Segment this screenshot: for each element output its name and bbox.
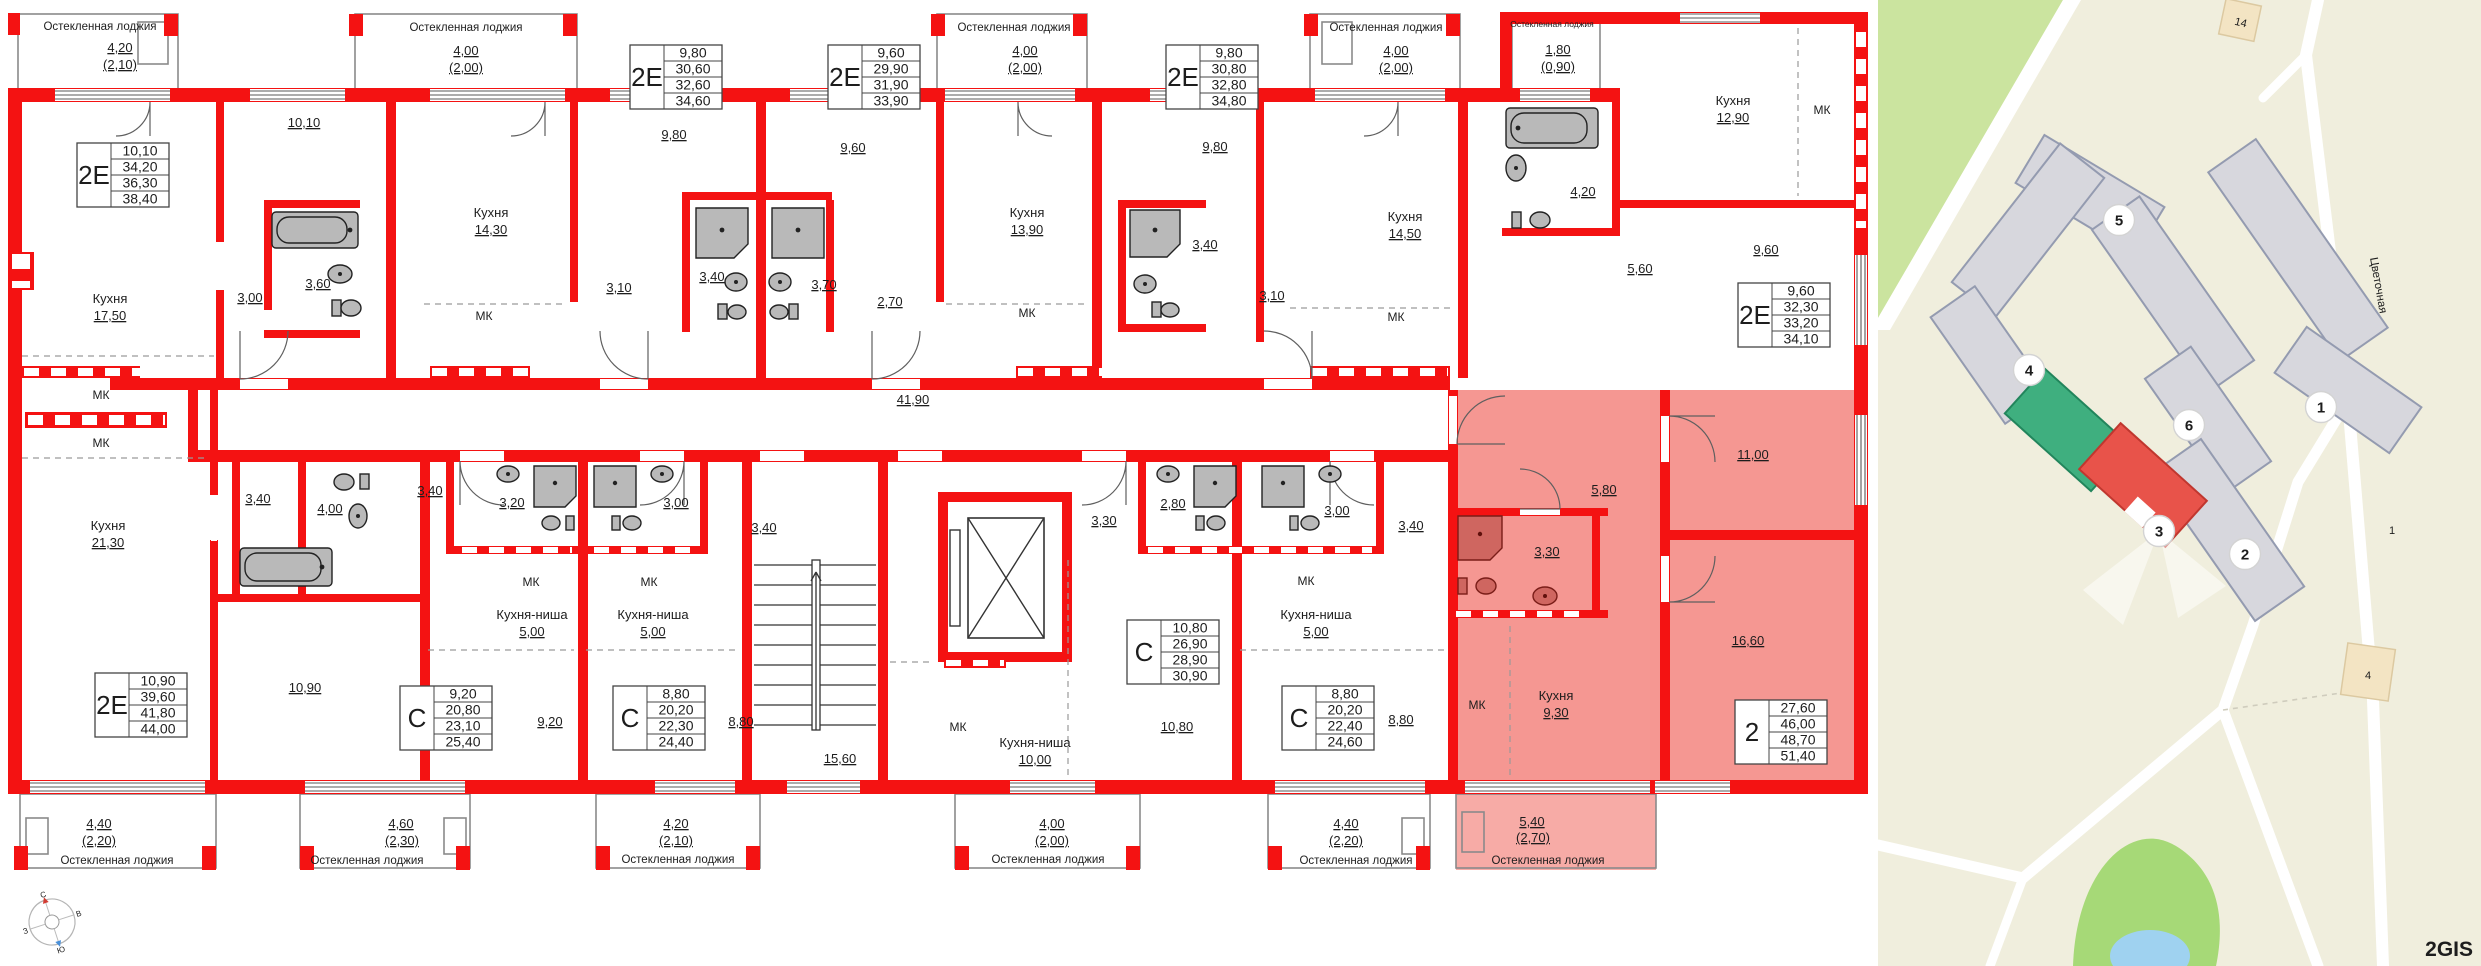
apartment-area-value: 24,60 [1327, 734, 1362, 750]
apartment-area-value: 34,60 [675, 93, 710, 109]
room-label: 10,10 [288, 115, 321, 130]
bathtub-icon [272, 212, 358, 248]
apartment-type-label: 2Е [631, 62, 663, 92]
apartment-area-value: 9,20 [449, 686, 476, 702]
sink-icon [1533, 587, 1557, 605]
room-label: (2,20) [1329, 833, 1363, 848]
toilet-icon [1196, 516, 1225, 530]
room-label: 3,40 [245, 491, 270, 506]
room-label: Кухня [91, 518, 126, 533]
room-label: 9,60 [1753, 242, 1778, 257]
floor-plan[interactable]: СВЮЗ Остекленная лоджия4,20(2,10)Остекле… [0, 0, 1878, 966]
apartment-area-value: 34,80 [1211, 93, 1246, 109]
apartment-type-label: С [1290, 703, 1309, 733]
apartment-area-value: 39,60 [140, 689, 175, 705]
staircase [754, 560, 876, 730]
room-label: 4,00 [317, 501, 342, 516]
room-label: 10,90 [289, 680, 322, 695]
apartment-area-value: 22,40 [1327, 718, 1362, 734]
apartment-table[interactable]: С10,8026,9028,9030,90 [1127, 620, 1219, 685]
room-label: 4,20 [663, 816, 688, 831]
room-label: Кухня [474, 205, 509, 220]
toilet-icon [334, 474, 369, 490]
apartment-table[interactable]: 2Е9,6032,3033,2034,10 [1738, 283, 1830, 348]
room-label: 4,60 [388, 816, 413, 831]
apartment-table[interactable]: 2Е9,6029,9031,9033,90 [828, 45, 920, 110]
marker-number: 1 [2317, 400, 2325, 417]
room-label: 4,40 [1333, 816, 1358, 831]
apartment-area-value: 46,00 [1780, 716, 1815, 732]
room-label: Остекленная лоджия [1329, 22, 1442, 34]
apartment-area-value: 48,70 [1780, 732, 1815, 748]
room-label: 2,80 [1160, 496, 1185, 511]
toilet-icon [542, 516, 574, 530]
shower-icon [1194, 466, 1236, 507]
room-label: (0,90) [1541, 59, 1575, 74]
room-label: 3,10 [606, 280, 631, 295]
toilet-icon [1152, 302, 1179, 317]
apartment-table[interactable]: С8,8020,2022,3024,40 [613, 686, 705, 751]
toilet-icon [1290, 516, 1319, 530]
room-label: Остекленная лоджия [43, 21, 156, 33]
marker-number: 6 [2185, 418, 2193, 435]
room-label: 9,30 [1543, 705, 1568, 720]
room-label: Остекленная лоджия [310, 855, 423, 867]
apartment-type-label: 2 [1745, 717, 1759, 747]
room-label: 3,00 [1324, 503, 1349, 518]
apartment-type-label: С [1135, 637, 1154, 667]
apartment-area-value: 36,30 [122, 175, 157, 191]
room-label: МК [1298, 574, 1315, 588]
room-label: 3,40 [1192, 237, 1217, 252]
room-label: (2,00) [449, 60, 483, 75]
building-number-label: 4 [2365, 670, 2371, 682]
room-label: 5,40 [1519, 814, 1544, 829]
room-label: (2,00) [1379, 60, 1413, 75]
room-label: 21,30 [92, 535, 125, 550]
room-label: Кухня [1010, 205, 1045, 220]
apartment-area-value: 32,80 [1211, 77, 1246, 93]
marker-number: 4 [2025, 363, 2034, 380]
room-label: Кухня-ниша [1280, 607, 1352, 622]
room-label: Кухня-ниша [496, 607, 568, 622]
apartment-area-value: 29,90 [873, 61, 908, 77]
room-label: 5,00 [1303, 624, 1328, 639]
room-label: 4,00 [453, 43, 478, 58]
apartment-area-value: 9,80 [1215, 45, 1242, 61]
room-label: 4,40 [86, 816, 111, 831]
toilet-icon [612, 516, 641, 530]
apartment-area-value: 30,60 [675, 61, 710, 77]
bathtub-icon [240, 548, 332, 586]
apartment-type-label: С [621, 703, 640, 733]
building-number-label: 1 [2389, 525, 2395, 537]
apartment-table[interactable]: 227,6046,0048,7051,40 [1735, 700, 1827, 765]
room-label: 15,60 [824, 751, 857, 766]
room-label: 9,80 [1202, 139, 1227, 154]
room-label: 5,80 [1591, 482, 1616, 497]
room-label: 5,00 [519, 624, 544, 639]
apartment-area-value: 28,90 [1172, 652, 1207, 668]
room-label: 13,90 [1011, 222, 1044, 237]
room-label: 4,00 [1383, 43, 1408, 58]
apartment-area-value: 51,40 [1780, 748, 1815, 764]
apartment-type-label: 2Е [96, 690, 128, 720]
room-label: 3,00 [237, 290, 262, 305]
apartment-area-value: 10,80 [1172, 620, 1207, 636]
room-label: 11,00 [1737, 447, 1769, 462]
building-marker-2[interactable]: 2 [2230, 539, 2261, 570]
room-label: 3,30 [1091, 513, 1116, 528]
room-label: 5,60 [1627, 261, 1652, 276]
room-label: 4,20 [107, 40, 132, 55]
room-label: МК [93, 436, 110, 450]
room-label: (2,10) [103, 57, 137, 72]
room-label: 3,40 [417, 483, 442, 498]
room-label: 10,00 [1019, 752, 1052, 767]
room-label: Кухня [1716, 93, 1751, 108]
apartment-type-label: С [408, 703, 427, 733]
apartment-area-value: 32,60 [675, 77, 710, 93]
marker-number: 5 [2115, 213, 2123, 230]
room-label: 14,30 [475, 222, 508, 237]
apartment-area-value: 41,80 [140, 705, 175, 721]
apartment-area-value: 30,90 [1172, 668, 1207, 684]
room-label: МК [1814, 103, 1831, 117]
apartment-area-value: 10,90 [140, 673, 175, 689]
apartment-area-value: 10,10 [122, 143, 157, 159]
room-label: МК [523, 575, 540, 589]
room-label: МК [1019, 306, 1036, 320]
apartment-area-value: 38,40 [122, 191, 157, 207]
room-label: МК [641, 575, 658, 589]
apartment-area-value: 22,30 [658, 718, 693, 734]
marker-number: 3 [2155, 524, 2163, 541]
apartment-area-value: 20,20 [1327, 702, 1362, 718]
room-label: Остекленная лоджия [957, 22, 1070, 34]
room-label: Остекленная лоджия [1299, 855, 1412, 867]
room-label: 9,20 [537, 714, 562, 729]
room-label: МК [950, 720, 967, 734]
room-label: 3,40 [751, 520, 776, 535]
apartment-type-label: 2Е [1167, 62, 1199, 92]
room-label: 8,80 [728, 714, 753, 729]
apartment-area-value: 44,00 [140, 721, 175, 737]
shower-icon [1262, 466, 1304, 507]
apartment-area-value: 20,80 [445, 702, 480, 718]
room-label: 3,40 [699, 269, 724, 284]
location-map[interactable]: Цветочная 2GIS 1441 546123 [1878, 0, 2481, 966]
shower-icon [594, 466, 636, 507]
room-label: 3,60 [305, 276, 330, 291]
sink-icon [1134, 275, 1156, 293]
room-label: 9,60 [840, 140, 865, 155]
sink-icon [1506, 155, 1526, 181]
sink-icon [725, 273, 747, 291]
building-marker-1[interactable]: 1 [2306, 392, 2337, 423]
room-label: Остекленная лоджия [409, 22, 522, 34]
apartment-area-value: 33,90 [873, 93, 908, 109]
room-label: Кухня [1388, 209, 1423, 224]
room-label: (2,10) [659, 833, 693, 848]
map-watermark: 2GIS [2425, 938, 2473, 961]
apartment-area-value: 23,10 [445, 718, 480, 734]
sink-icon [1157, 466, 1179, 482]
room-label: (2,30) [385, 833, 419, 848]
room-label: (2,70) [1516, 830, 1550, 845]
sink-icon [1319, 466, 1341, 482]
room-label: 12,90 [1717, 110, 1750, 125]
room-label: 3,40 [1398, 518, 1423, 533]
shower-icon [696, 208, 748, 258]
apartment-area-value: 24,40 [658, 734, 693, 750]
room-label: МК [476, 309, 493, 323]
apartment-table[interactable]: 2Е9,8030,8032,8034,80 [1166, 45, 1258, 110]
apartment-area-value: 34,10 [1783, 331, 1818, 347]
building-marker-3[interactable]: 3 [2144, 516, 2175, 547]
room-label: 3,10 [1259, 288, 1284, 303]
room-label: 3,70 [811, 277, 836, 292]
apartment-area-value: 8,80 [662, 686, 689, 702]
apartment-table[interactable]: 2Е10,1034,2036,3038,40 [77, 143, 169, 208]
apartment-area-value: 9,60 [877, 45, 904, 61]
room-label: 4,00 [1039, 816, 1064, 831]
building-marker-5[interactable]: 5 [2104, 205, 2135, 236]
shower-icon [772, 208, 824, 258]
room-label: 17,50 [94, 308, 127, 323]
room-label: 3,30 [1534, 544, 1559, 559]
room-label: МК [1469, 698, 1486, 712]
building-marker-4[interactable]: 4 [2014, 355, 2045, 386]
apartment-area-value: 32,30 [1783, 299, 1818, 315]
apartment-area-value: 20,20 [658, 702, 693, 718]
apartment-area-value: 30,80 [1211, 61, 1246, 77]
room-label: Кухня [93, 291, 128, 306]
sink-icon [497, 466, 519, 482]
room-label: 1,80 [1545, 42, 1570, 57]
room-label: 3,20 [499, 495, 524, 510]
room-label: (2,00) [1035, 833, 1069, 848]
apartment-area-value: 9,60 [1787, 283, 1814, 299]
room-label: 3,00 [663, 495, 688, 510]
marker-number: 2 [2241, 547, 2249, 564]
room-label: Остекленная лоджия [1491, 855, 1604, 867]
toilet-icon [718, 304, 746, 319]
room-label: 9,80 [661, 127, 686, 142]
toilet-icon [332, 300, 361, 316]
room-label: Кухня-ниша [999, 735, 1071, 750]
room-label: Остекленная лоджия [991, 854, 1104, 866]
room-label: 4,20 [1570, 184, 1595, 199]
room-label: 41,90 [897, 392, 930, 407]
room-label: (2,20) [82, 833, 116, 848]
toilet-icon [770, 304, 798, 319]
apartment-area-value: 8,80 [1331, 686, 1358, 702]
shower-icon [534, 466, 576, 507]
building-marker-6[interactable]: 6 [2174, 410, 2205, 441]
room-label: МК [1388, 310, 1405, 324]
sink-icon [651, 466, 673, 482]
room-label: 10,80 [1161, 719, 1194, 734]
sink-icon [769, 273, 791, 291]
apartment-area-value: 33,20 [1783, 315, 1818, 331]
apartment-area-value: 34,20 [122, 159, 157, 175]
room-label: 2,70 [877, 294, 902, 309]
floor-plan-panel: СВЮЗ Остекленная лоджия4,20(2,10)Остекле… [0, 0, 1878, 966]
apartment-area-value: 25,40 [445, 734, 480, 750]
room-label: Кухня-ниша [617, 607, 689, 622]
apartment-area-value: 26,90 [1172, 636, 1207, 652]
room-label: МК [93, 388, 110, 402]
shower-icon [1130, 210, 1180, 257]
room-label: (2,00) [1008, 60, 1042, 75]
room-label: 16,60 [1732, 633, 1765, 648]
room-label: Остекленная лоджия [60, 855, 173, 867]
room-label: Остекленная лоджия [621, 854, 734, 866]
apartment-table[interactable]: 2Е10,9039,6041,8044,00 [95, 673, 187, 738]
room-label: 14,50 [1389, 226, 1422, 241]
apartment-area-value: 31,90 [873, 77, 908, 93]
bathtub-icon [1506, 108, 1598, 148]
apartment-type-label: 2Е [829, 62, 861, 92]
sink-icon [328, 265, 352, 283]
room-label: 5,00 [640, 624, 665, 639]
room-label: Кухня [1539, 688, 1574, 703]
apartment-table[interactable]: С9,2020,8023,1025,40 [400, 686, 492, 751]
floorplan-viewer: СВЮЗ Остекленная лоджия4,20(2,10)Остекле… [0, 0, 2481, 966]
apartment-table[interactable]: С8,8020,2022,4024,60 [1282, 686, 1374, 751]
map-canvas[interactable]: Цветочная 2GIS 1441 546123 [1878, 0, 2481, 966]
apartment-area-value: 9,80 [679, 45, 706, 61]
apartment-type-label: 2Е [78, 160, 110, 190]
room-label: 8,80 [1388, 712, 1413, 727]
apartment-area-value: 27,60 [1780, 700, 1815, 716]
sink-icon [349, 504, 367, 528]
apartment-type-label: 2Е [1739, 300, 1771, 330]
shower-icon [1458, 516, 1502, 560]
room-label: 4,00 [1012, 43, 1037, 58]
room-label: Остекленная лоджия [1510, 19, 1594, 29]
apartment-table[interactable]: 2Е9,8030,6032,6034,60 [630, 45, 722, 110]
